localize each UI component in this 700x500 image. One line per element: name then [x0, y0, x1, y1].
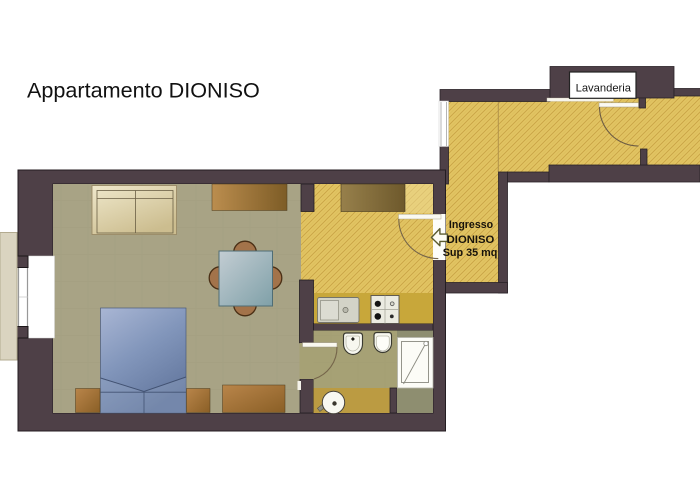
svg-text:Appartamento DIONISO: Appartamento DIONISO: [27, 77, 260, 102]
svg-text:DIONISO: DIONISO: [447, 234, 495, 246]
svg-text:Sup 35 mq: Sup 35 mq: [443, 247, 498, 259]
svg-text:Ingresso: Ingresso: [449, 219, 494, 231]
svg-text:Lavanderia: Lavanderia: [576, 82, 632, 94]
